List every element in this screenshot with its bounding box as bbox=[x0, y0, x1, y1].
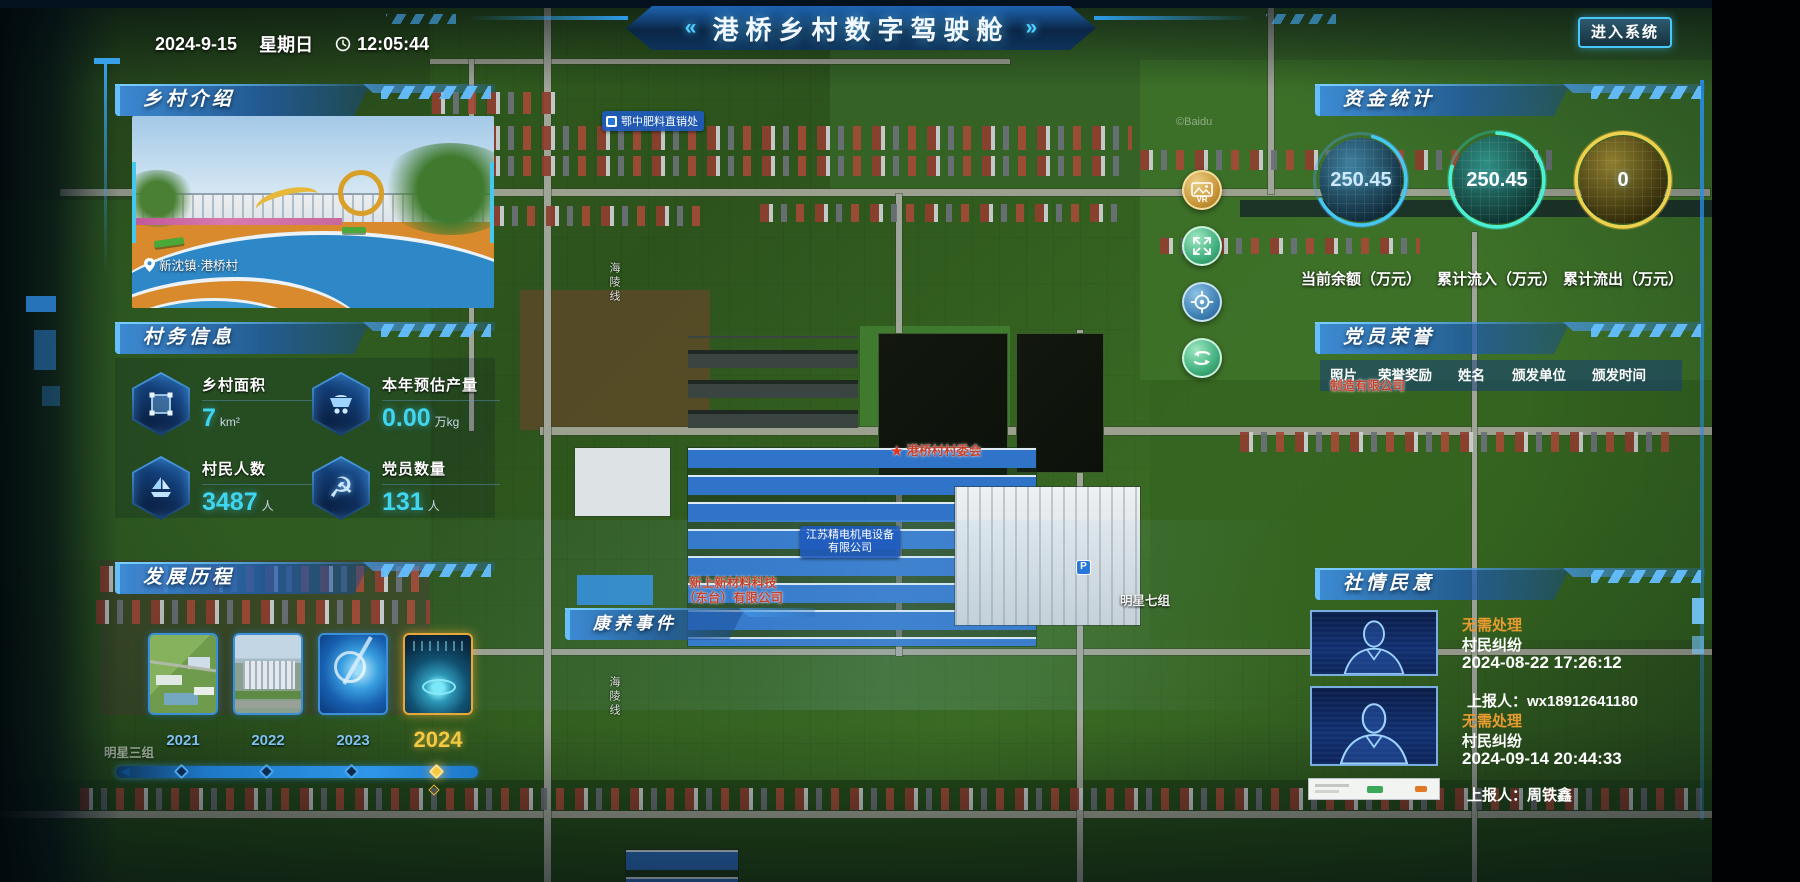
map-poi-company-blue[interactable]: 江苏精电机电设备 有限公司 bbox=[800, 526, 900, 558]
clock-icon bbox=[335, 36, 351, 52]
frame-accent bbox=[42, 386, 60, 406]
sentiment-reporter: 上报人：wx18912641180 bbox=[1467, 690, 1638, 711]
stat-party-member-count: ☭ 党员数量 131人 bbox=[312, 456, 500, 520]
fullscreen-button[interactable] bbox=[1182, 226, 1222, 266]
timeline-marker-2023[interactable] bbox=[344, 764, 360, 780]
panel-title: 资金统计 bbox=[1343, 84, 1435, 115]
year-2023[interactable]: 2023 bbox=[318, 732, 388, 749]
person-wireframe-icon bbox=[1326, 700, 1422, 764]
year-2022[interactable]: 2022 bbox=[233, 732, 303, 749]
history-thumb-2022[interactable] bbox=[233, 633, 303, 715]
gauge-total-inflow: 250.45 bbox=[1447, 130, 1547, 230]
map-poi-fertilizer-shop[interactable]: 鄂中肥料直销处 bbox=[602, 111, 704, 131]
timeline-slider[interactable] bbox=[116, 766, 478, 778]
frame-accent bbox=[94, 58, 120, 64]
map-place-group3: 明星三组 bbox=[104, 742, 154, 761]
map-poi-village-committee[interactable]: ★ 港桥村村委会 bbox=[890, 444, 981, 459]
panel-header-funds: 资金统计 bbox=[1315, 84, 1705, 116]
baidu-watermark: ©Baidu bbox=[1176, 116, 1212, 128]
person-wireframe-icon bbox=[1331, 618, 1417, 674]
timeline-marker-2024[interactable] bbox=[429, 764, 445, 780]
col-name: 姓名 bbox=[1458, 360, 1485, 391]
panel-title: 村务信息 bbox=[143, 322, 235, 353]
location-pin-icon bbox=[144, 258, 155, 272]
right-black-margin bbox=[1712, 0, 1800, 882]
sentiment-avatar-1[interactable] bbox=[1310, 610, 1438, 676]
enter-system-button[interactable]: 进入系统 bbox=[1578, 17, 1672, 48]
gauge-label-balance: 当前余额（万元） bbox=[1286, 268, 1436, 289]
sentiment-category: 村民纠纷 bbox=[1462, 730, 1522, 751]
panel-header-village-intro: 乡村介绍 bbox=[115, 84, 495, 116]
timeline-marker-2021[interactable] bbox=[174, 764, 190, 780]
map-road-label: 海陵线 bbox=[606, 676, 622, 718]
panel-title: 社情民意 bbox=[1343, 568, 1435, 599]
photo-corner-accent bbox=[490, 162, 494, 243]
sentiment-avatar-2[interactable] bbox=[1310, 686, 1438, 766]
gauge-label-outflow: 累计流出（万元） bbox=[1548, 268, 1698, 289]
gauge-total-outflow: 0 bbox=[1573, 130, 1673, 230]
layer-switch-button[interactable] bbox=[1182, 338, 1222, 378]
stat-estimated-output: 本年预估产量 0.00万kg bbox=[312, 372, 500, 436]
weekday-label: 星期日 bbox=[259, 31, 313, 57]
photo-corner-accent bbox=[132, 162, 136, 243]
sentiment-datetime: 2024-09-14 20:44:33 bbox=[1462, 749, 1622, 769]
dashboard-stage: 鄂中肥料直销处 ★ 港桥村村委会 江苏精电机电设备 有限公司 新上新材料科技 （… bbox=[0, 0, 1800, 882]
panel-header-party-honor: 党员荣誉 bbox=[1315, 322, 1705, 354]
party-emblem-icon: ☭ bbox=[312, 456, 370, 520]
frame-accent bbox=[34, 330, 56, 370]
stat-village-area: 乡村面积 7km² bbox=[132, 372, 320, 436]
panel-header-health-events: 康养事件 bbox=[565, 608, 815, 640]
col-issuer: 颁发单位 bbox=[1512, 360, 1566, 391]
panel-title: 康养事件 bbox=[593, 608, 677, 639]
frame-accent bbox=[26, 296, 56, 312]
sentiment-status: 无需处理 bbox=[1462, 614, 1522, 635]
panel-title: 党员荣誉 bbox=[1343, 322, 1435, 353]
map-road-label: 海陵线 bbox=[606, 262, 622, 304]
year-2021[interactable]: 2021 bbox=[148, 732, 218, 749]
star-pin-icon: ★ bbox=[890, 444, 903, 459]
vr-panorama-button[interactable]: VR bbox=[1182, 170, 1222, 210]
timeline-left-arrow-icon[interactable] bbox=[121, 767, 130, 777]
frame-accent bbox=[104, 62, 107, 272]
sentiment-reporter: 上报人：周铁鑫 bbox=[1467, 784, 1572, 805]
sentiment-attachment-thumb[interactable] bbox=[1308, 778, 1440, 800]
frame-accent bbox=[1692, 598, 1704, 624]
stat-villager-count: 村民人数 3487人 bbox=[132, 456, 320, 520]
switch-arrows-icon bbox=[1190, 348, 1214, 368]
area-icon bbox=[132, 372, 190, 436]
timeline-marker-2022[interactable] bbox=[259, 764, 275, 780]
sentiment-status: 无需处理 bbox=[1462, 710, 1522, 731]
locate-crosshair-icon bbox=[1190, 290, 1214, 314]
map-place-group7: 明星七组 bbox=[1120, 590, 1170, 609]
photo-location-caption: 新沈镇·港桥村 bbox=[144, 255, 238, 274]
panel-header-village-info: 村务信息 bbox=[115, 322, 495, 354]
time-label: 12:05:44 bbox=[357, 34, 429, 55]
col-issue-date: 颁发时间 bbox=[1592, 360, 1646, 391]
right-frame-line bbox=[1700, 80, 1704, 820]
panel-header-development: 发展历程 bbox=[115, 562, 495, 594]
date-label: 2024-9-15 bbox=[155, 34, 237, 55]
panel-header-sentiment: 社情民意 bbox=[1315, 568, 1705, 600]
frame-accent bbox=[1692, 636, 1704, 654]
village-photo[interactable]: 新沈镇·港桥村 bbox=[132, 116, 494, 308]
cart-icon bbox=[312, 372, 370, 436]
locate-button[interactable] bbox=[1182, 282, 1222, 322]
history-thumb-2023[interactable] bbox=[318, 633, 388, 715]
history-thumb-2024[interactable] bbox=[403, 633, 473, 715]
ring-sculpture bbox=[338, 170, 384, 216]
villagers-icon bbox=[132, 456, 190, 520]
sentiment-datetime: 2024-08-22 17:26:12 bbox=[1462, 653, 1622, 673]
history-thumb-2021[interactable] bbox=[148, 633, 218, 715]
year-2024[interactable]: 2024 bbox=[403, 727, 473, 753]
map-poi-company-fragment: 制造有限公司 bbox=[1330, 379, 1405, 394]
map-poi-company-red[interactable]: 新上新材料科技 （东台）有限公司 bbox=[683, 576, 783, 606]
datetime-bar: 2024-9-15 星期日 12:05:44 bbox=[155, 31, 429, 57]
top-frame-strip bbox=[0, 0, 1800, 8]
parking-icon: P bbox=[1076, 560, 1091, 575]
poi-icon bbox=[606, 116, 617, 127]
panel-title: 乡村介绍 bbox=[143, 84, 235, 115]
panel-title: 发展历程 bbox=[143, 562, 235, 593]
gauge-current-balance: 250.45 bbox=[1313, 132, 1409, 228]
fullscreen-icon bbox=[1191, 235, 1213, 257]
sentiment-category: 村民纠纷 bbox=[1462, 634, 1522, 655]
